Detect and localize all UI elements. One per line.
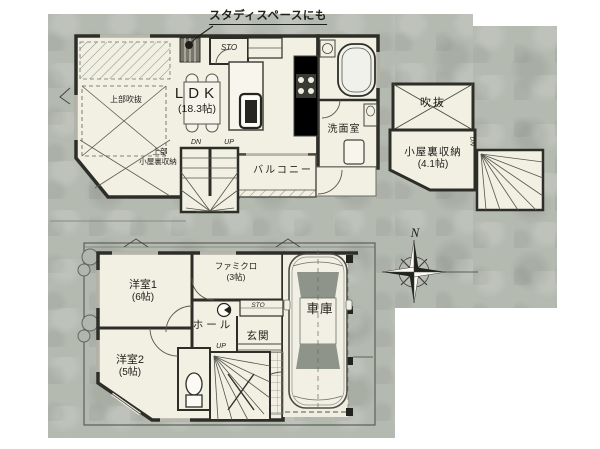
label-compass-north: N [411,226,420,239]
label-washroom: 洗面室 [328,125,361,135]
toilet-room [178,348,210,410]
bathtub-icon [338,44,375,96]
label-attic-storage-size: (4.1帖) [418,160,449,170]
car-icon [284,250,352,412]
balcony-area [238,155,316,197]
label-sto-2f: STO [221,44,237,52]
floorplan-page: スタディスペースにも STO LDK (18.3帖) 上部吹抜 上部 小屋裏収納… [0,0,600,449]
label-upper-attic-1: 上部 [153,148,168,156]
stove-icon [296,74,316,98]
stairs-2f [181,148,238,212]
alarm-symbol-icon [218,304,232,317]
label-dn-attic: DN [468,137,475,146]
label-famiclo-size: (3帖) [227,273,246,282]
label-room2-size: (5帖) [119,368,141,378]
fridge-icon [240,94,261,128]
upper-void-hatch [80,42,170,79]
label-upper-attic-2: 小屋裏収納 [139,158,177,166]
label-room1-name: 洋室1 [129,280,157,291]
stairs-attic [477,150,543,210]
label-ldk-size: (18.3帖) [178,104,216,115]
label-sto-1f: STO [251,303,264,310]
stairs-1f [210,352,270,420]
kitchen-counter [294,56,318,136]
label-dn-2f: DN [191,139,201,146]
label-room1-size: (6帖) [132,293,154,303]
label-famiclo-name: ファミクロ [215,262,258,271]
label-entrance: 玄関 [247,331,270,342]
label-study-note: スタディスペースにも [209,11,327,25]
label-attic-storage-name: 小屋裏収納 [404,147,462,158]
study-space-desk [180,38,200,62]
toilet-icon [186,373,202,395]
shrub-icons [78,249,98,342]
label-upper-void: 上部吹抜 [110,96,142,104]
label-up-1f: UP [216,343,226,350]
label-hall: ホール [193,320,234,331]
label-up-2f: UP [224,139,234,146]
label-balcony: バルコニー [253,166,313,176]
label-attic-void: 吹抜 [420,98,446,109]
floorplan-linework [0,0,600,449]
label-ldk-name: LDK [175,86,219,101]
label-room2-name: 洋室2 [116,355,144,366]
label-garage: 車庫 [306,303,333,316]
compass-icon [382,240,478,303]
